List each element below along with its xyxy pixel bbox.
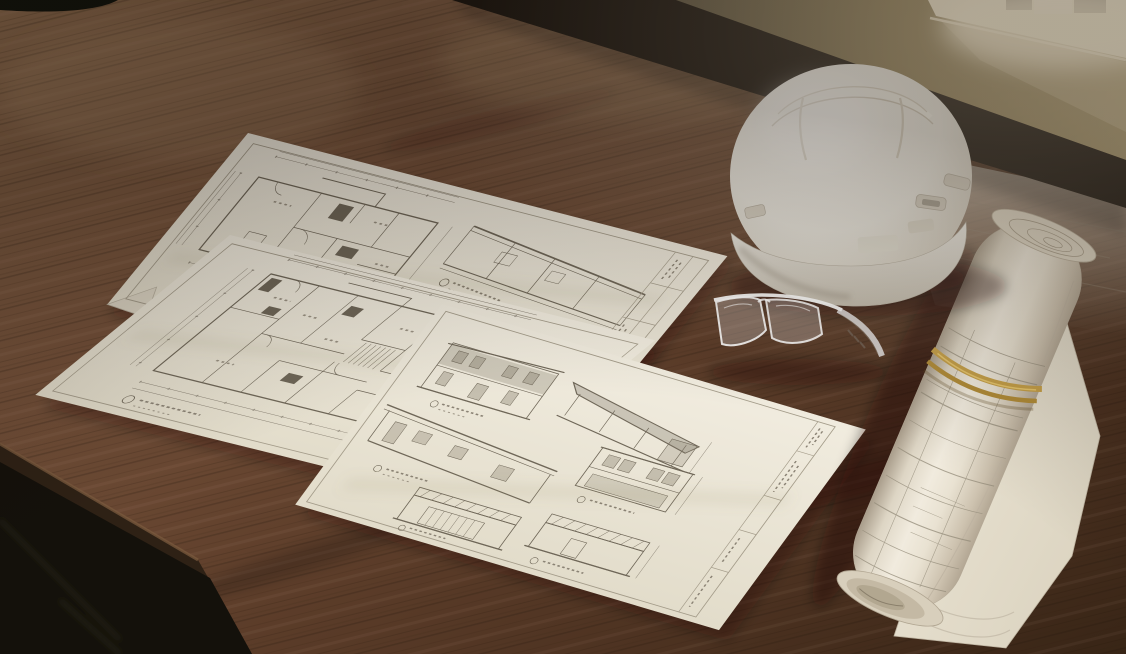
vignette-overlay — [0, 0, 1126, 654]
photo-canvas — [0, 0, 1126, 654]
scene-construction-desk — [0, 0, 1126, 654]
